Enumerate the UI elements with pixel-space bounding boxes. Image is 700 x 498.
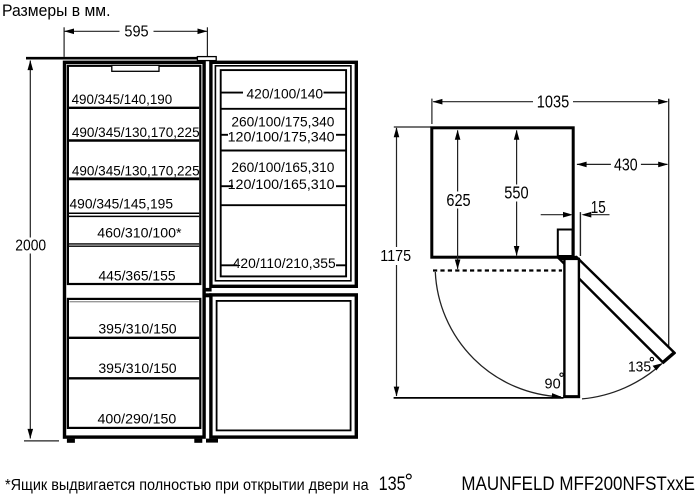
svg-text:395/310/150: 395/310/150 (98, 320, 177, 336)
svg-text:550: 550 (504, 183, 529, 203)
svg-text:490/345/145,195: 490/345/145,195 (70, 196, 174, 212)
svg-text:445/365/155: 445/365/155 (98, 268, 175, 284)
svg-text:15: 15 (591, 197, 606, 217)
svg-text:1175: 1175 (380, 248, 411, 265)
svg-text:625: 625 (446, 190, 470, 210)
svg-text:460/310/100*: 460/310/100* (97, 225, 182, 241)
svg-text:Размеры в мм.: Размеры в мм. (2, 2, 111, 20)
svg-text:395/310/150: 395/310/150 (98, 360, 177, 376)
svg-text:260/100/165,310: 260/100/165,310 (231, 159, 334, 175)
svg-text:120/100/165,310: 120/100/165,310 (228, 176, 335, 192)
svg-text:400/290/150: 400/290/150 (98, 411, 177, 427)
svg-text:490/345/140,190: 490/345/140,190 (72, 91, 173, 107)
svg-text:430: 430 (614, 155, 638, 175)
svg-text:*Ящик выдвигается полностью пр: *Ящик выдвигается полностью при открытии… (5, 477, 369, 494)
svg-text:490/345/130,170,225: 490/345/130,170,225 (72, 124, 200, 140)
svg-text:490/345/130,170,225: 490/345/130,170,225 (72, 163, 200, 179)
svg-text:595: 595 (124, 24, 148, 41)
svg-text:120/100/175,340: 120/100/175,340 (228, 129, 335, 145)
svg-text:135: 135 (379, 474, 406, 495)
svg-text:2000: 2000 (15, 238, 46, 255)
svg-text:420/100/140: 420/100/140 (247, 85, 324, 101)
svg-text:135: 135 (628, 359, 651, 376)
svg-text:420/110/210,355: 420/110/210,355 (233, 255, 336, 271)
svg-text:MAUNFELD MFF200NFSTxxE: MAUNFELD MFF200NFSTxxE (461, 474, 695, 495)
svg-text:260/100/175,340: 260/100/175,340 (231, 114, 334, 130)
svg-text:90: 90 (545, 375, 561, 392)
svg-text:1035: 1035 (537, 92, 569, 112)
